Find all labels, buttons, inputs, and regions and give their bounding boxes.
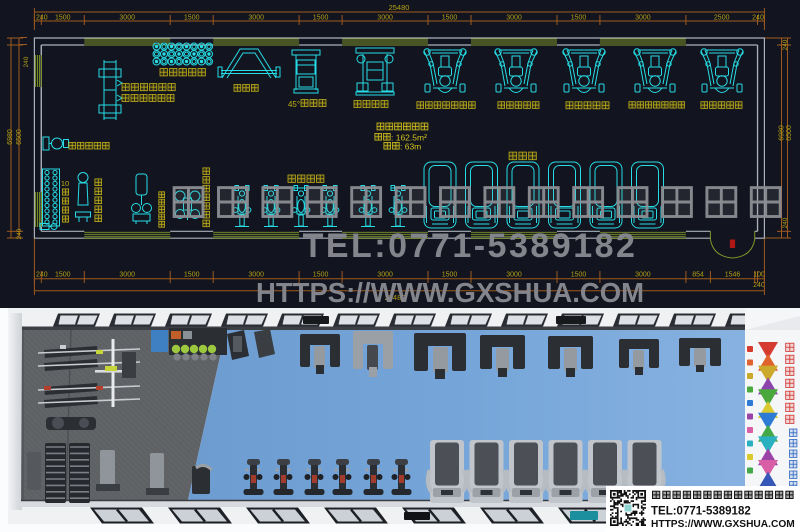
svg-text:6980: 6980 <box>7 129 14 145</box>
svg-text:100: 100 <box>753 272 765 279</box>
svg-text:1500: 1500 <box>55 15 71 22</box>
svg-text:2500: 2500 <box>714 15 730 22</box>
svg-text:240: 240 <box>782 39 789 50</box>
svg-text:240: 240 <box>753 282 765 289</box>
svg-text:3000: 3000 <box>248 15 264 22</box>
svg-text:1500: 1500 <box>55 272 71 279</box>
svg-text:1500: 1500 <box>442 15 458 22</box>
svg-text:3000: 3000 <box>506 15 522 22</box>
svg-text:3000: 3000 <box>119 272 135 279</box>
svg-text:1500: 1500 <box>184 272 200 279</box>
svg-text:HTTPS://WWW.GXSHUA.COM: HTTPS://WWW.GXSHUA.COM <box>256 277 644 308</box>
svg-text:3000: 3000 <box>119 15 135 22</box>
svg-text:240: 240 <box>752 15 764 22</box>
svg-text:HTTPS://WWW.GXSHUA.COM: HTTPS://WWW.GXSHUA.COM <box>651 519 795 530</box>
svg-text:: 63m: : 63m <box>400 142 421 152</box>
svg-text:854: 854 <box>692 272 704 279</box>
svg-text:240: 240 <box>782 217 789 228</box>
svg-text:1500: 1500 <box>184 15 200 22</box>
svg-text:TEL:0771-5389182: TEL:0771-5389182 <box>303 227 638 265</box>
svg-text:45°: 45° <box>288 100 300 109</box>
svg-text:6500: 6500 <box>786 125 793 141</box>
svg-text:1500: 1500 <box>571 15 587 22</box>
svg-text:240: 240 <box>23 56 30 67</box>
svg-text:6500: 6500 <box>16 129 23 145</box>
svg-text:TEL:0771-5389182: TEL:0771-5389182 <box>651 506 751 518</box>
svg-text:3000: 3000 <box>635 15 651 22</box>
svg-text:1546: 1546 <box>725 272 741 279</box>
svg-text:3000: 3000 <box>377 15 393 22</box>
svg-text:25480: 25480 <box>389 3 410 12</box>
svg-text:240: 240 <box>16 228 23 239</box>
svg-text:240: 240 <box>36 15 48 22</box>
svg-text:10: 10 <box>61 179 69 188</box>
svg-text:6980: 6980 <box>779 125 786 141</box>
svg-text:240: 240 <box>36 272 48 279</box>
svg-text:1500: 1500 <box>313 15 329 22</box>
